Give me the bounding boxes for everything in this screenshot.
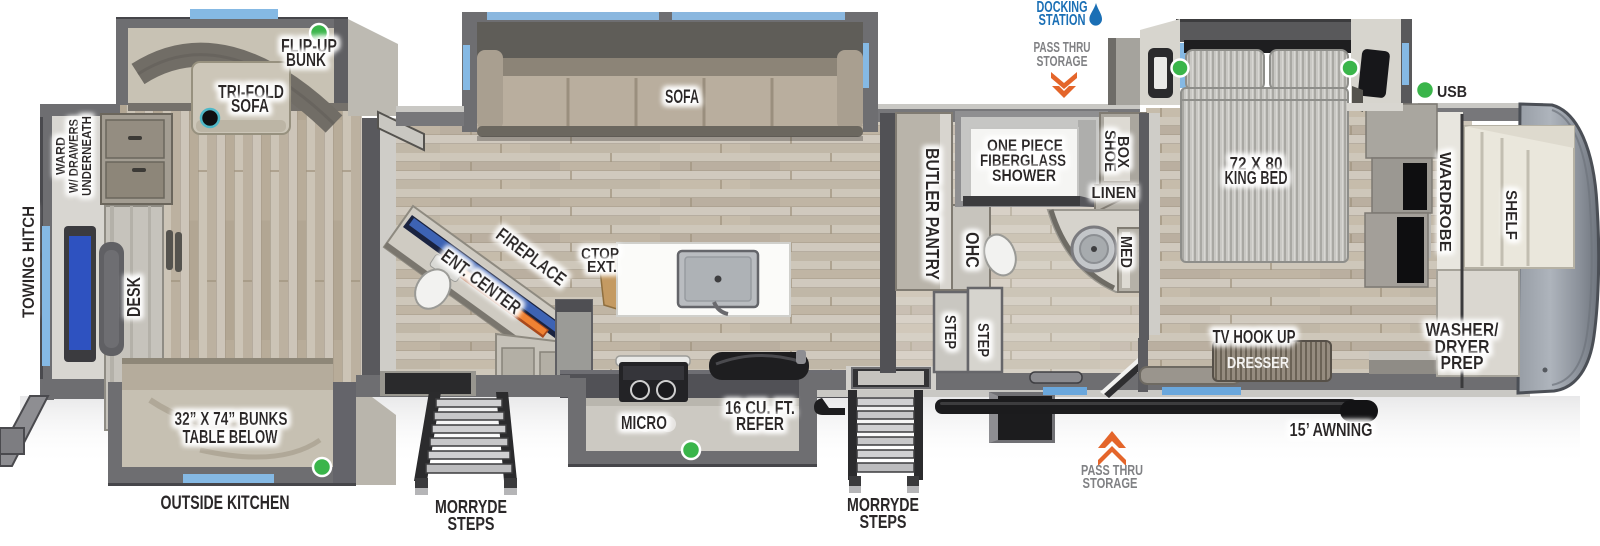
svg-text:TABLE BELOW: TABLE BELOW <box>183 427 278 447</box>
svg-text:SOFA: SOFA <box>665 87 699 108</box>
svg-text:BUNK: BUNK <box>286 50 326 70</box>
svg-text:STORAGE: STORAGE <box>1083 475 1138 492</box>
svg-text:KING BED: KING BED <box>1225 168 1288 188</box>
svg-text:32” X 74” BUNKS: 32” X 74” BUNKS <box>175 409 288 429</box>
svg-text:WARDROBE: WARDROBE <box>1436 152 1453 252</box>
svg-text:STEP: STEP <box>974 323 991 357</box>
svg-text:MICRO: MICRO <box>621 413 667 433</box>
svg-text:DESK: DESK <box>124 277 144 317</box>
svg-text:TV HOOK UP: TV HOOK UP <box>1213 327 1296 347</box>
svg-text:EXT.: EXT. <box>587 259 617 276</box>
svg-text:STORAGE: STORAGE <box>1037 53 1088 70</box>
svg-text:MED: MED <box>1117 236 1134 268</box>
svg-text:BUTLER PANTRY: BUTLER PANTRY <box>922 148 942 280</box>
svg-text:PREP: PREP <box>1441 353 1484 373</box>
svg-text:STEP: STEP <box>941 315 958 349</box>
svg-text:UNDERNEATH: UNDERNEATH <box>79 116 94 196</box>
svg-text:STEPS: STEPS <box>860 512 907 532</box>
svg-text:SOFA: SOFA <box>231 96 269 116</box>
svg-text:SHOWER: SHOWER <box>992 166 1056 185</box>
svg-text:LINEN: LINEN <box>1092 185 1137 202</box>
svg-text:STEPS: STEPS <box>448 514 495 534</box>
svg-text:TOWING HITCH: TOWING HITCH <box>19 206 38 318</box>
svg-text:DRESSER: DRESSER <box>1227 355 1289 372</box>
svg-text:BOX: BOX <box>1114 136 1131 168</box>
svg-text:OUTSIDE KITCHEN: OUTSIDE KITCHEN <box>161 493 290 514</box>
svg-text:15’ AWNING: 15’ AWNING <box>1290 420 1373 440</box>
svg-text:REFER: REFER <box>736 414 784 434</box>
svg-text:SHELF: SHELF <box>1502 190 1519 240</box>
svg-text:USB: USB <box>1437 84 1467 101</box>
svg-text:STATION: STATION <box>1039 12 1086 29</box>
svg-text:OHC: OHC <box>962 232 982 268</box>
